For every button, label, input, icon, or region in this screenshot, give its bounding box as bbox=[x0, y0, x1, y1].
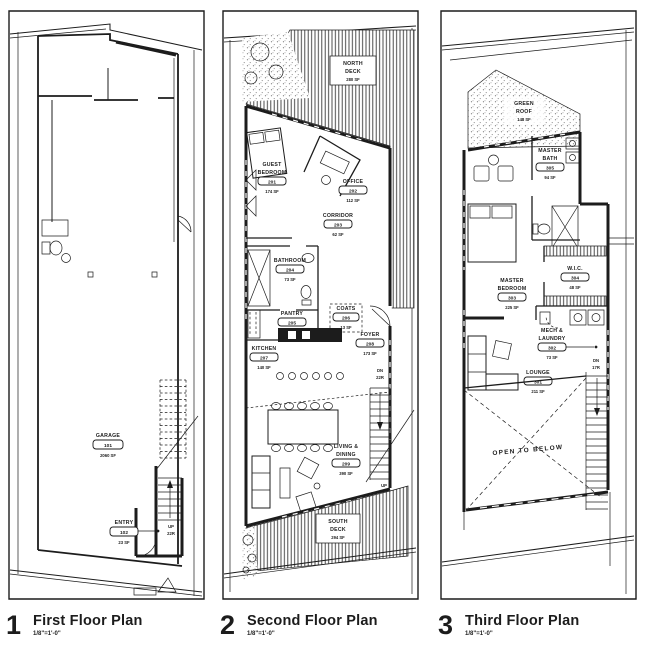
green-roof: GREEN ROOF 148 SF bbox=[468, 70, 580, 148]
svg-text:22R: 22R bbox=[167, 531, 175, 536]
svg-text:209: 209 bbox=[342, 462, 350, 468]
svg-text:22R: 22R bbox=[376, 375, 384, 380]
caption-scale: 1/8"=1'-0" bbox=[247, 631, 378, 637]
room-label-office: OFFICE 202 112 SF bbox=[339, 179, 367, 203]
svg-text:DECK: DECK bbox=[330, 527, 346, 533]
svg-text:UP: UP bbox=[168, 524, 174, 529]
stair-up: UP 22R bbox=[156, 380, 198, 556]
svg-text:148 SF: 148 SF bbox=[517, 117, 531, 122]
svg-text:OPEN TO BELOW: OPEN TO BELOW bbox=[492, 444, 563, 457]
open-to-below: OPEN TO BELOW bbox=[464, 376, 608, 510]
svg-text:112 SF: 112 SF bbox=[346, 198, 360, 203]
exterior-walls bbox=[464, 132, 608, 512]
caption-title: Third Floor Plan bbox=[465, 614, 579, 630]
svg-text:ENTRY: ENTRY bbox=[115, 520, 134, 526]
svg-text:MECH &: MECH & bbox=[541, 328, 563, 334]
svg-text:DN: DN bbox=[593, 358, 599, 363]
drawing-sheet: GARAGE 101 2060 SF UP 22R ENTRY 102 23 S… bbox=[0, 0, 646, 659]
room-label-coats: COATS 206 13 SF bbox=[333, 306, 359, 330]
svg-text:62 SF: 62 SF bbox=[332, 232, 344, 237]
svg-text:203: 203 bbox=[334, 223, 342, 229]
svg-text:17R: 17R bbox=[592, 365, 600, 370]
svg-text:GARAGE: GARAGE bbox=[96, 433, 121, 439]
caption-third-floor: 3 Third Floor Plan 1/8"=1'-0" bbox=[438, 612, 579, 639]
caption-title: Second Floor Plan bbox=[247, 614, 378, 630]
lot-line-south bbox=[442, 492, 634, 566]
svg-text:201: 201 bbox=[268, 180, 276, 186]
caption-scale: 1/8"=1'-0" bbox=[33, 631, 143, 637]
caption-second-floor: 2 Second Floor Plan 1/8"=1'-0" bbox=[220, 612, 378, 639]
svg-text:13 SF: 13 SF bbox=[340, 325, 352, 330]
svg-text:BEDROOM: BEDROOM bbox=[258, 170, 287, 176]
room-label-garage: GARAGE 101 2060 SF bbox=[93, 433, 123, 458]
entry-room bbox=[136, 508, 182, 556]
svg-text:BEDROOM: BEDROOM bbox=[498, 286, 527, 292]
svg-text:207: 207 bbox=[260, 356, 268, 362]
floor-cut-line bbox=[246, 392, 390, 408]
room-label-master-bedroom: MASTER BEDROOM 303 225 SF bbox=[498, 278, 527, 310]
svg-text:174 SF: 174 SF bbox=[265, 189, 279, 194]
svg-text:140 SF: 140 SF bbox=[257, 365, 271, 370]
first-floor-plan: GARAGE 101 2060 SF UP 22R ENTRY 102 23 S… bbox=[9, 11, 204, 599]
room-label-living-dining: LIVING & DINING 209 390 SF bbox=[332, 444, 360, 476]
svg-text:48 SF: 48 SF bbox=[569, 285, 581, 290]
garage-walls bbox=[38, 34, 182, 566]
column bbox=[88, 272, 93, 277]
svg-text:LIVING &: LIVING & bbox=[334, 444, 358, 450]
svg-text:ROOF: ROOF bbox=[516, 109, 532, 115]
svg-text:304: 304 bbox=[571, 276, 579, 282]
deck-label-south: SOUTH DECK 294 SF bbox=[316, 514, 360, 543]
svg-text:KITCHEN: KITCHEN bbox=[252, 346, 277, 352]
svg-text:73 SF: 73 SF bbox=[546, 355, 558, 360]
toilet-fixtures bbox=[42, 220, 71, 263]
room-label-wic: W.I.C. 304 48 SF bbox=[561, 266, 589, 290]
svg-text:23 SF: 23 SF bbox=[118, 540, 130, 545]
svg-text:PANTRY: PANTRY bbox=[281, 311, 304, 317]
svg-text:390 SF: 390 SF bbox=[339, 471, 353, 476]
svg-text:294 SF: 294 SF bbox=[331, 535, 345, 540]
svg-text:173 SF: 173 SF bbox=[363, 351, 377, 356]
svg-text:LAUNDRY: LAUNDRY bbox=[539, 336, 566, 342]
svg-text:DINING: DINING bbox=[336, 452, 356, 458]
caption-number: 3 bbox=[438, 612, 453, 639]
room-label-guest-bedroom: GUEST BEDROOM 201 174 SF bbox=[258, 162, 287, 194]
side-door bbox=[178, 216, 191, 232]
room-label-corridor: CORRIDOR 203 62 SF bbox=[323, 213, 353, 237]
svg-text:205: 205 bbox=[288, 321, 296, 327]
svg-text:101: 101 bbox=[104, 443, 112, 449]
stair-down: DN 17R bbox=[586, 358, 608, 510]
svg-text:211 SF: 211 SF bbox=[531, 389, 545, 394]
svg-text:GREEN: GREEN bbox=[514, 101, 534, 107]
caption-number: 2 bbox=[220, 612, 235, 639]
dining-table bbox=[268, 403, 338, 452]
caption-number: 1 bbox=[6, 612, 21, 639]
svg-text:225 SF: 225 SF bbox=[505, 305, 519, 310]
svg-text:73 SF: 73 SF bbox=[284, 277, 296, 282]
third-floor-plan: GREEN ROOF 148 SF MASTER BATH bbox=[441, 11, 636, 599]
svg-text:202: 202 bbox=[349, 189, 357, 195]
svg-text:COATS: COATS bbox=[336, 306, 355, 312]
lot-line-north bbox=[442, 28, 634, 46]
room-label-bathroom: BATHROOM 204 73 SF bbox=[274, 258, 306, 282]
svg-text:DN: DN bbox=[377, 368, 383, 373]
svg-text:SOUTH: SOUTH bbox=[328, 519, 347, 525]
svg-text:NORTH: NORTH bbox=[343, 61, 363, 67]
svg-text:206: 206 bbox=[342, 316, 350, 322]
svg-text:MASTER: MASTER bbox=[500, 278, 523, 284]
svg-text:BATHROOM: BATHROOM bbox=[274, 258, 306, 264]
neighbor-lines bbox=[608, 238, 634, 244]
caption-first-floor: 1 First Floor Plan 1/8"=1'-0" bbox=[6, 612, 143, 639]
column bbox=[152, 272, 157, 277]
room-label-foyer: FOYER 208 173 SF bbox=[356, 332, 384, 356]
bathroom bbox=[246, 246, 318, 310]
svg-text:305: 305 bbox=[546, 166, 554, 172]
svg-text:208: 208 bbox=[366, 342, 374, 348]
second-floor-plan: NORTH DECK 280 SF GUEST BEDROOM bbox=[223, 11, 418, 599]
svg-text:UP: UP bbox=[381, 483, 387, 488]
svg-text:204: 204 bbox=[286, 268, 294, 274]
sofa bbox=[252, 456, 290, 508]
room-label-mech-laundry: MECH & LAUNDRY 302 73 SF bbox=[538, 328, 597, 360]
svg-text:303: 303 bbox=[508, 296, 516, 302]
svg-text:BATH: BATH bbox=[542, 156, 557, 162]
svg-text:MASTER: MASTER bbox=[538, 148, 561, 154]
room-label-kitchen: KITCHEN 207 140 SF bbox=[250, 346, 278, 370]
svg-text:LOUNGE: LOUNGE bbox=[526, 370, 550, 376]
svg-text:FOYER: FOYER bbox=[360, 332, 379, 338]
svg-text:W.I.C.: W.I.C. bbox=[567, 266, 583, 272]
svg-text:DECK: DECK bbox=[345, 69, 361, 75]
svg-text:102: 102 bbox=[120, 530, 128, 536]
lot-line-south bbox=[10, 570, 202, 596]
svg-text:302: 302 bbox=[548, 346, 556, 352]
lounge-furniture bbox=[468, 336, 518, 390]
foyer-entry-door bbox=[370, 306, 390, 326]
svg-text:CORRIDOR: CORRIDOR bbox=[323, 213, 353, 219]
caption-title: First Floor Plan bbox=[33, 614, 143, 630]
svg-text:94 SF: 94 SF bbox=[544, 175, 556, 180]
svg-text:2060 SF: 2060 SF bbox=[100, 453, 116, 458]
deck-label-north: NORTH DECK 280 SF bbox=[330, 56, 376, 85]
lounge-chairs bbox=[296, 457, 320, 512]
svg-text:280 SF: 280 SF bbox=[346, 77, 360, 82]
svg-text:OFFICE: OFFICE bbox=[343, 179, 364, 185]
room-label-master-bath: MASTER BATH 305 94 SF bbox=[536, 148, 564, 180]
svg-text:GUEST: GUEST bbox=[262, 162, 282, 168]
mech-laundry bbox=[536, 306, 608, 328]
caption-scale: 1/8"=1'-0" bbox=[465, 631, 579, 637]
floor-plans-drawing: GARAGE 101 2060 SF UP 22R ENTRY 102 23 S… bbox=[0, 0, 646, 610]
lot-lines-side bbox=[18, 32, 194, 596]
